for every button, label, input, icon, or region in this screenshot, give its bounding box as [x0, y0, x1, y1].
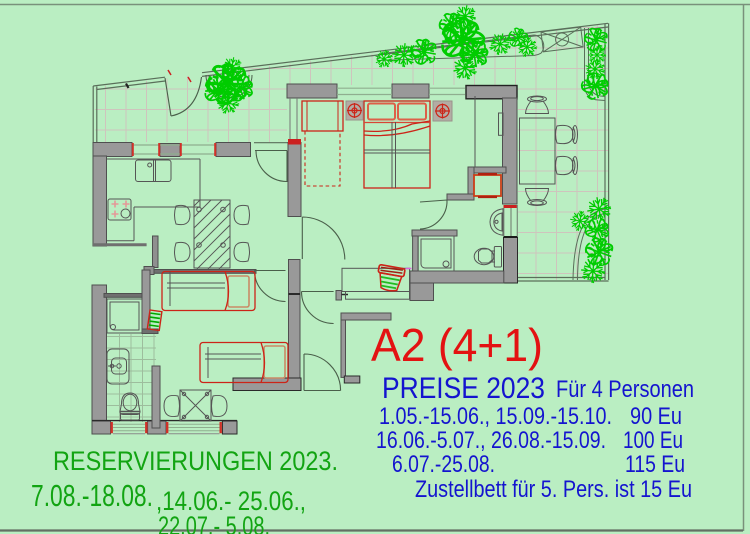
svg-text:6.07.-25.08.: 6.07.-25.08.	[392, 451, 495, 478]
svg-text:RESERVIERUNGEN 2023.: RESERVIERUNGEN 2023.	[53, 446, 338, 476]
svg-text:16.06.-5.07., 26.08.-15.09.: 16.06.-5.07., 26.08.-15.09.	[376, 427, 606, 454]
svg-text:PREISE 2023: PREISE 2023	[382, 372, 545, 405]
svg-text:A2 (4+1): A2 (4+1)	[371, 319, 543, 371]
svg-text:1.05.-15.06., 15.09.-15.10.: 1.05.-15.06., 15.09.-15.10.	[379, 403, 612, 430]
svg-text:22.07.- 5.08.: 22.07.- 5.08.	[158, 511, 270, 534]
svg-text:7.08.-18.08.: 7.08.-18.08.	[31, 478, 153, 513]
svg-text:90 Eu: 90 Eu	[630, 403, 682, 430]
svg-text:Für 4 Personen: Für 4 Personen	[556, 376, 694, 403]
svg-text:115 Eu: 115 Eu	[625, 451, 685, 478]
svg-text:Zustellbett für 5. Pers. ist 1: Zustellbett für 5. Pers. ist 15 Eu	[415, 476, 692, 503]
svg-text:100 Eu: 100 Eu	[623, 427, 683, 454]
